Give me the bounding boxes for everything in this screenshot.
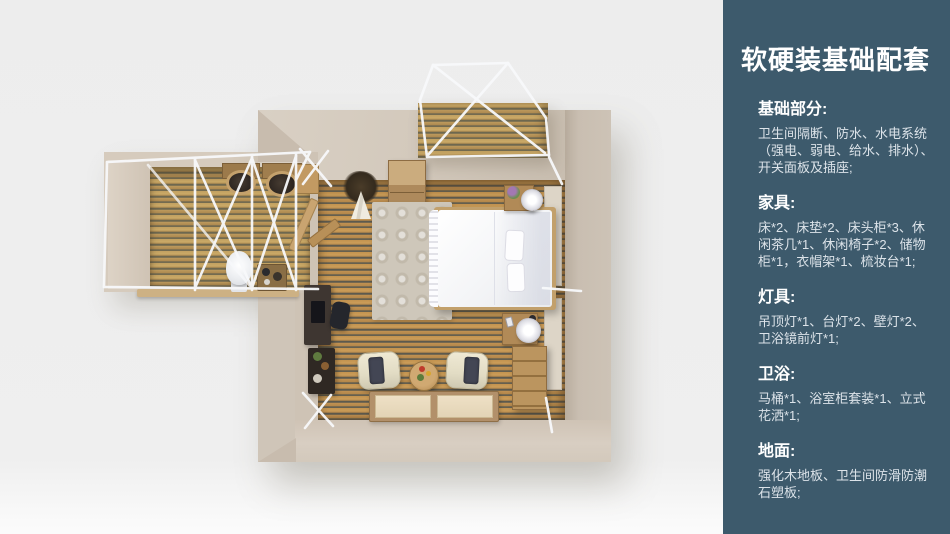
section-body: 马桶*1、浴室柜套装*1、立式 花洒*1; bbox=[758, 390, 936, 424]
pillow-top bbox=[504, 230, 525, 262]
flower-red bbox=[419, 366, 425, 372]
bed-canopy-frill bbox=[429, 210, 438, 307]
shelf-plant-3 bbox=[313, 374, 322, 383]
table-lamp-top bbox=[521, 189, 543, 211]
storage-cabinet bbox=[388, 160, 426, 206]
corner-wardrobe bbox=[295, 164, 319, 194]
slide: 软硬装基础配套 基础部分: 卫生间隔断、防水、水电系统 （强电、弱电、给水、排水… bbox=[0, 0, 950, 534]
nightstand-plant bbox=[507, 186, 520, 199]
right-wall bbox=[565, 110, 611, 462]
bath-item-1 bbox=[262, 268, 270, 276]
section-body: 卫生间隔断、防水、水电系统 （强电、弱电、给水、排水）、 开关面板及插座; bbox=[758, 125, 936, 176]
spec-section-basics: 基础部分: 卫生间隔断、防水、水电系统 （强电、弱电、给水、排水）、 开关面板及… bbox=[758, 100, 936, 176]
flower-green bbox=[417, 374, 424, 381]
section-body: 强化木地板、卫生间防滑防潮 石塑板; bbox=[758, 467, 936, 501]
sink-basin-left bbox=[226, 170, 256, 195]
section-heading: 家具: bbox=[758, 194, 936, 214]
bottom-wall bbox=[295, 420, 611, 462]
section-heading: 地面: bbox=[758, 442, 936, 462]
spec-section-lighting: 灯具: 吊顶灯*1、台灯*2、壁灯*2、 卫浴镜前灯*1; bbox=[758, 288, 936, 347]
sink-basin-right bbox=[266, 171, 298, 197]
floor-mat-left bbox=[375, 395, 431, 418]
bathroom-left-wall bbox=[108, 160, 150, 289]
coffee-table bbox=[409, 361, 439, 391]
section-heading: 卫浴: bbox=[758, 365, 936, 385]
floor-mat-right bbox=[437, 395, 493, 418]
spec-section-flooring: 地面: 强化木地板、卫生间防滑防潮 石塑板; bbox=[758, 442, 936, 501]
spec-panel: 软硬装基础配套 基础部分: 卫生间隔断、防水、水电系统 （强电、弱电、给水、排水… bbox=[723, 0, 950, 534]
laptop bbox=[311, 301, 325, 323]
shelf-plant-2 bbox=[321, 362, 329, 370]
section-body: 吊顶灯*1、台灯*2、壁灯*2、 卫浴镜前灯*1; bbox=[758, 313, 936, 347]
pillow-bottom bbox=[506, 263, 525, 293]
storage-cabinet-drawer-line bbox=[390, 192, 424, 193]
toilet bbox=[226, 251, 252, 285]
armchair-right-cushion bbox=[463, 357, 479, 385]
section-heading: 基础部分: bbox=[758, 100, 936, 120]
table-lamp-bottom bbox=[516, 318, 541, 343]
bath-item-3 bbox=[264, 279, 270, 285]
section-heading: 灯具: bbox=[758, 288, 936, 308]
deck bbox=[418, 103, 548, 158]
bath-accessory-stand bbox=[257, 264, 287, 291]
spec-section-furniture: 家具: 床*2、床垫*2、床头柜*3、休 闲茶几*1、休闲椅子*2、储物 柜*1… bbox=[758, 194, 936, 270]
bath-item-2 bbox=[273, 272, 282, 281]
section-body: 床*2、床垫*2、床头柜*3、休 闲茶几*1、休闲椅子*2、储物 柜*1，衣帽架… bbox=[758, 219, 936, 270]
dresser bbox=[512, 346, 547, 410]
panel-title: 软硬装基础配套 bbox=[741, 44, 940, 76]
shelf-plant-1 bbox=[313, 352, 322, 361]
flower-yellow bbox=[426, 371, 431, 376]
spec-section-bathroom: 卫浴: 马桶*1、浴室柜套装*1、立式 花洒*1; bbox=[758, 365, 936, 424]
armchair-left-cushion bbox=[368, 357, 385, 385]
